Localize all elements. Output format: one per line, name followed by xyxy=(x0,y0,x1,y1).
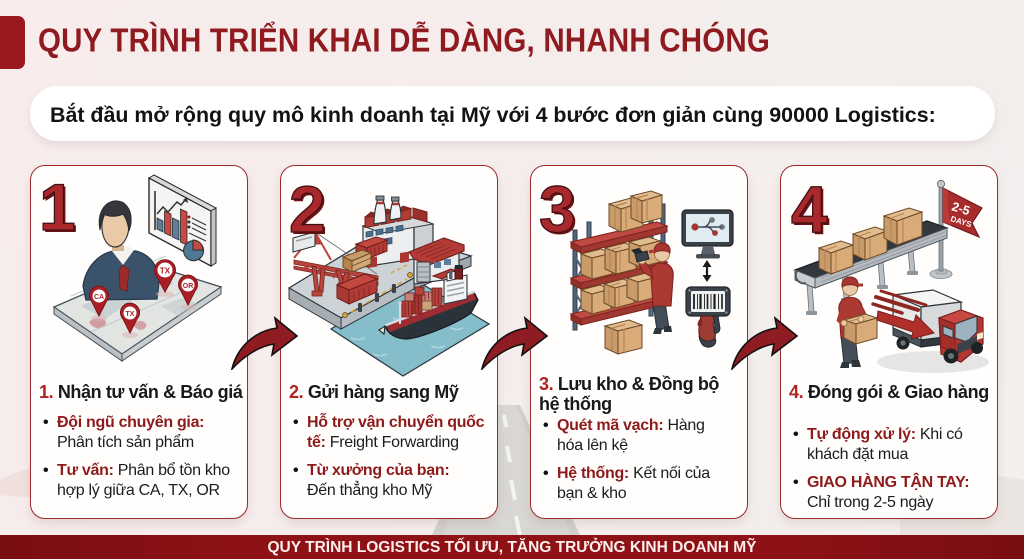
svg-text:OR: OR xyxy=(183,283,194,290)
svg-text:TX: TX xyxy=(160,267,171,276)
svg-text:TX: TX xyxy=(126,311,135,318)
svg-text:CA: CA xyxy=(94,294,104,301)
